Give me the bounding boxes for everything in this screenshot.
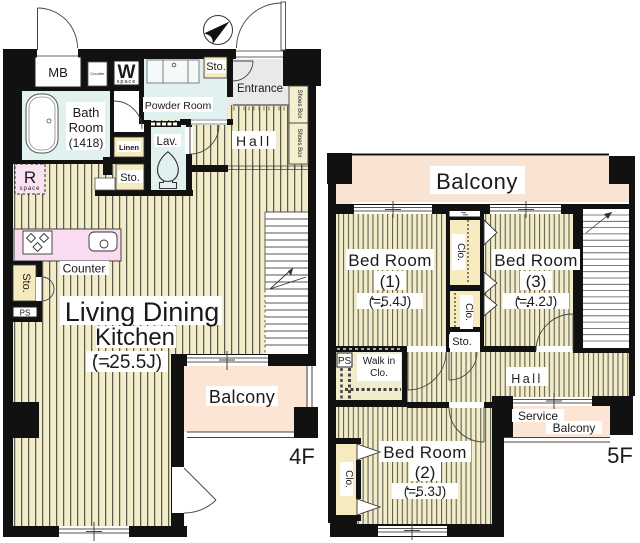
svg-text:Bath: Bath [73, 105, 100, 120]
svg-text:Entrance: Entrance [237, 83, 283, 95]
svg-text:PS: PS [20, 309, 31, 318]
svg-text:(1418): (1418) [69, 136, 104, 150]
svg-text:(2): (2) [415, 463, 436, 482]
svg-text:(=5.3J): (=5.3J) [404, 484, 446, 499]
svg-text:(=4.2J): (=4.2J) [515, 294, 557, 309]
svg-text:Sto.: Sto. [20, 273, 32, 293]
svg-text:Balcony: Balcony [436, 169, 518, 194]
svg-text:Clo.: Clo. [463, 303, 474, 321]
svg-text:Shoes Box: Shoes Box [296, 128, 302, 157]
svg-text:Counter: Counter [63, 262, 106, 276]
svg-text:(=5.4J): (=5.4J) [369, 294, 411, 309]
svg-text:Bed Room: Bed Room [494, 251, 578, 270]
svg-text:Kitchen: Kitchen [95, 324, 175, 351]
svg-text:Linen: Linen [119, 143, 139, 152]
svg-text:Hall: Hall [511, 372, 543, 386]
svg-text:Bed Room: Bed Room [383, 443, 467, 462]
svg-text:Clo.: Clo. [343, 470, 354, 488]
svg-text:(=25.5J): (=25.5J) [92, 352, 162, 373]
svg-text:Clo.: Clo. [370, 368, 388, 379]
svg-text:MB: MB [48, 65, 68, 80]
svg-text:(1): (1) [380, 272, 401, 291]
svg-text:Counter: Counter [90, 71, 105, 76]
svg-text:Shoes Box: Shoes Box [296, 89, 302, 118]
svg-text:space: space [117, 79, 137, 85]
svg-text:Sto.: Sto. [120, 172, 140, 184]
svg-text:PS: PS [338, 356, 352, 367]
svg-text:Room: Room [69, 120, 104, 135]
svg-text:Lav.: Lav. [157, 136, 178, 148]
svg-text:Balcony: Balcony [209, 387, 275, 407]
svg-text:5F: 5F [607, 443, 633, 468]
svg-text:SD: SD [104, 168, 111, 174]
svg-text:Powder Room: Powder Room [145, 100, 212, 112]
svg-text:Walk in: Walk in [363, 356, 395, 367]
svg-text:Bed Room: Bed Room [348, 251, 432, 270]
svg-text:Balcony: Balcony [553, 421, 596, 435]
svg-text:Clo.: Clo. [455, 243, 466, 261]
svg-text:Living Dining: Living Dining [65, 297, 220, 327]
svg-text:space: space [19, 186, 40, 192]
svg-text:Sto.: Sto. [206, 61, 226, 73]
svg-text:Hall: Hall [236, 133, 272, 149]
svg-text:4F: 4F [289, 444, 315, 469]
svg-text:(3): (3) [526, 272, 547, 291]
svg-text:R: R [24, 168, 36, 187]
